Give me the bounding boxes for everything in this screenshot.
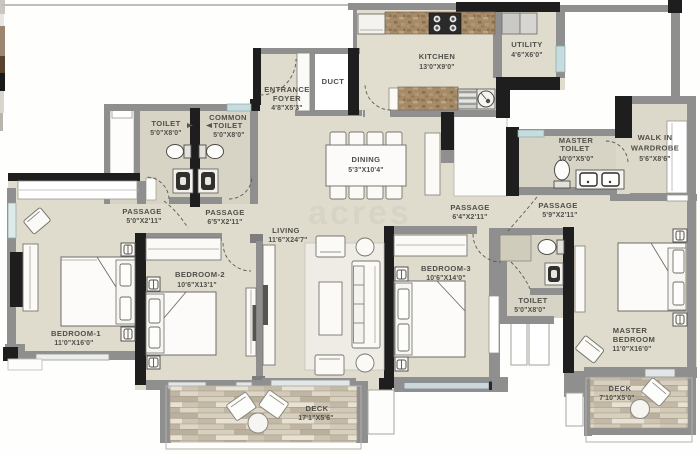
svg-text:KITCHEN: KITCHEN bbox=[419, 52, 456, 61]
svg-text:DUCT: DUCT bbox=[322, 77, 345, 86]
svg-text:ENTRANCE: ENTRANCE bbox=[264, 85, 309, 94]
svg-text:DECK: DECK bbox=[608, 384, 631, 393]
svg-text:6'4"X2'11": 6'4"X2'11" bbox=[452, 214, 487, 221]
svg-text:TOILET: TOILET bbox=[213, 121, 242, 130]
svg-text:17'1"X5'6": 17'1"X5'6" bbox=[298, 415, 334, 422]
svg-text:DINING: DINING bbox=[352, 155, 381, 164]
svg-text:4'6"X6'0": 4'6"X6'0" bbox=[511, 52, 543, 59]
svg-text:TOILET: TOILET bbox=[560, 144, 589, 153]
svg-text:PASSAGE: PASSAGE bbox=[205, 208, 244, 217]
svg-text:PASSAGE: PASSAGE bbox=[538, 201, 577, 210]
svg-text:13'0"X9'0": 13'0"X9'0" bbox=[419, 64, 455, 71]
svg-text:10'6"X14'0": 10'6"X14'0" bbox=[426, 275, 466, 282]
svg-text:FOYER: FOYER bbox=[273, 94, 301, 103]
svg-text:BEDROOM-2: BEDROOM-2 bbox=[175, 270, 225, 279]
svg-text:11'0"X16'0": 11'0"X16'0" bbox=[612, 346, 651, 353]
svg-text:5'0"X8'0": 5'0"X8'0" bbox=[514, 307, 546, 314]
svg-text:5'6"X8'6": 5'6"X8'6" bbox=[639, 156, 671, 163]
svg-text:UTILITY: UTILITY bbox=[511, 40, 542, 49]
svg-text:WARDROBE: WARDROBE bbox=[631, 144, 679, 153]
svg-text:5'0"X8'0": 5'0"X8'0" bbox=[150, 130, 182, 137]
svg-text:WALK IN: WALK IN bbox=[638, 133, 673, 142]
svg-text:DECK: DECK bbox=[305, 404, 328, 413]
svg-text:5'3"X10'4": 5'3"X10'4" bbox=[348, 167, 384, 174]
svg-text:acres: acres bbox=[308, 194, 412, 232]
svg-text:11'0"X16'0": 11'0"X16'0" bbox=[54, 340, 93, 347]
svg-text:MASTER: MASTER bbox=[613, 326, 648, 335]
svg-text:PASSAGE: PASSAGE bbox=[450, 203, 489, 212]
svg-text:4'8"X5'3": 4'8"X5'3" bbox=[271, 105, 303, 112]
svg-text:TOILET: TOILET bbox=[518, 296, 547, 305]
svg-text:LIVING: LIVING bbox=[272, 226, 300, 235]
svg-text:7'10"X5'0": 7'10"X5'0" bbox=[599, 395, 635, 402]
svg-text:BEDROOM-3: BEDROOM-3 bbox=[421, 264, 471, 273]
svg-text:BEDROOM: BEDROOM bbox=[613, 335, 655, 344]
svg-text:10'6"X13'1": 10'6"X13'1" bbox=[177, 282, 217, 289]
svg-text:10'0"X5'0": 10'0"X5'0" bbox=[558, 156, 594, 163]
svg-text:5'0"X8'0": 5'0"X8'0" bbox=[213, 132, 245, 139]
svg-text:PASSAGE: PASSAGE bbox=[122, 207, 161, 216]
svg-text:5'0"X2'11": 5'0"X2'11" bbox=[126, 218, 161, 225]
svg-text:5'9"X2'11": 5'9"X2'11" bbox=[542, 212, 577, 219]
svg-text:BEDROOM-1: BEDROOM-1 bbox=[51, 329, 101, 338]
svg-text:6'5"X2'11": 6'5"X2'11" bbox=[207, 219, 242, 226]
svg-text:11'6"X24'7": 11'6"X24'7" bbox=[268, 237, 307, 244]
svg-text:TOILET: TOILET bbox=[151, 119, 180, 128]
